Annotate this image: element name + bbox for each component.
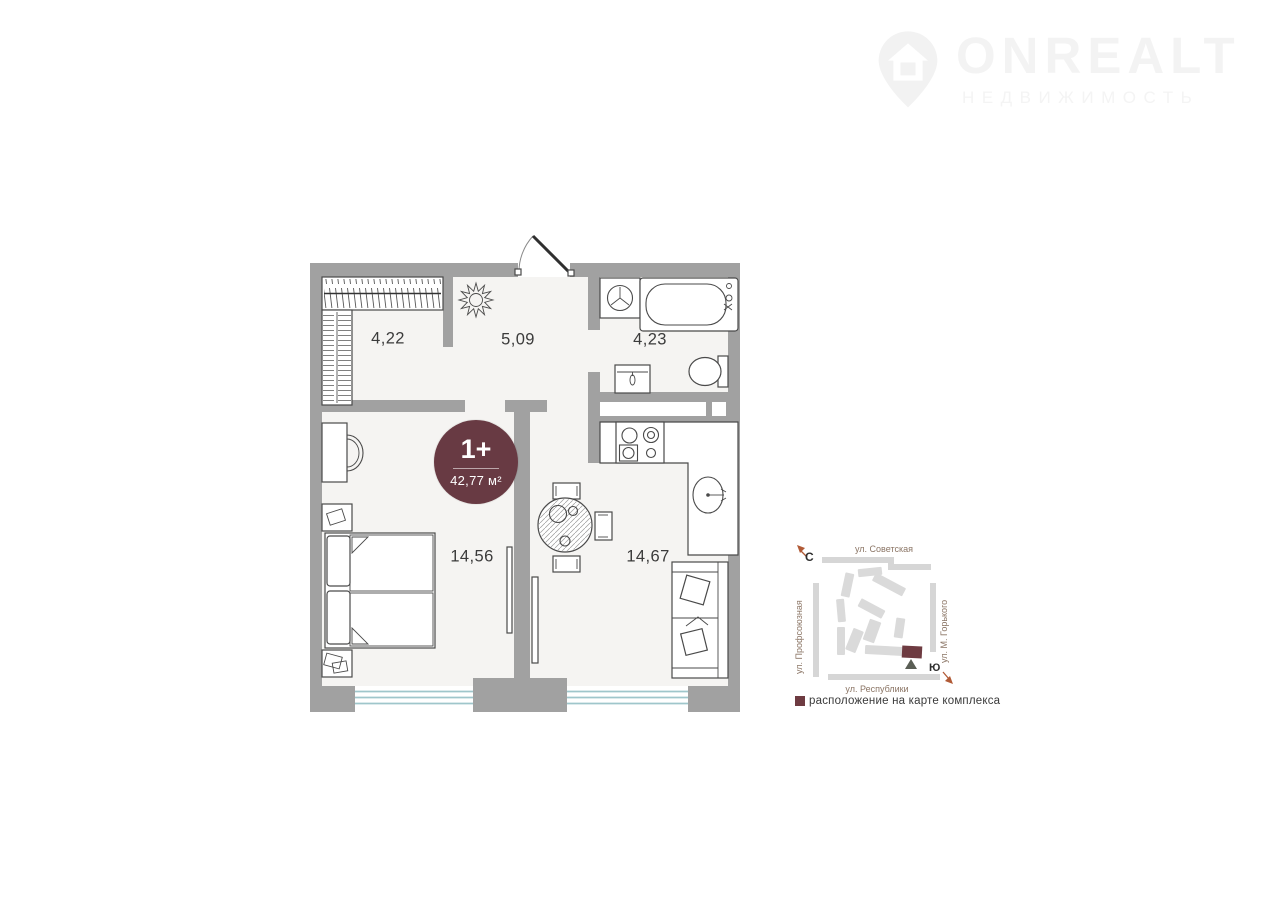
wardrobe-shelf-icon	[322, 310, 352, 405]
logo-subtitle-text: НЕДВИЖИМОСТЬ	[956, 88, 1241, 108]
map-building	[863, 619, 882, 644]
map-building	[857, 598, 885, 619]
street-label-right: ул. М. Горького	[939, 589, 949, 673]
logo-brand-text: ONREALT	[956, 30, 1241, 81]
floorplan-drawing	[310, 228, 740, 712]
bed-icon	[325, 533, 435, 648]
unit-badge: 1+ 42,77 м²	[434, 420, 518, 504]
site-map: С ул. Советская ул. Профсоюзная ул. М. Г…	[793, 543, 988, 718]
wall-bottom-pier-left	[310, 686, 355, 712]
legend-text: расположение на карте комплекса	[809, 695, 1000, 707]
window-icon	[355, 686, 473, 712]
screenshot-root: 4,22 5,09 4,23 14,56 14,67 1+ 42,77 м² O…	[0, 0, 1280, 902]
wall-top-left	[310, 263, 518, 277]
map-building	[837, 627, 845, 655]
shaft-opening	[712, 402, 726, 416]
map-building	[865, 645, 904, 656]
entry-door-icon	[515, 236, 574, 276]
south-arrow-icon	[941, 670, 955, 685]
wall-bottom-pier-center	[473, 678, 567, 712]
location-pointer-icon	[905, 659, 917, 669]
map-building	[841, 572, 855, 597]
street-bar	[890, 564, 931, 570]
room-label-wardrobe: 4,22	[371, 330, 405, 349]
sofa-icon	[672, 562, 728, 678]
room-label-living: 14,67	[626, 548, 669, 567]
wall-top-right	[570, 263, 740, 277]
stove-icon	[616, 422, 664, 463]
street-bar	[813, 583, 819, 677]
legend-square-icon	[795, 696, 805, 706]
location-marker-icon	[902, 645, 923, 658]
toilet-icon	[689, 356, 728, 387]
wall-bath-left-top	[588, 277, 600, 330]
map-building	[872, 573, 906, 597]
map-building	[845, 628, 864, 653]
nightstand-icon	[322, 650, 352, 677]
window-icon	[567, 686, 688, 712]
wall-bottom-pier-right	[688, 686, 740, 712]
room-label-hall: 5,09	[501, 331, 535, 350]
onrealt-pin-icon	[876, 30, 940, 110]
map-legend: расположение на карте комплекса	[795, 695, 1000, 707]
sink-icon	[615, 365, 650, 393]
compass-south: Ю	[929, 662, 940, 674]
sliding-door-panel	[532, 577, 538, 663]
map-building	[894, 617, 906, 638]
room-label-bathroom: 4,23	[633, 331, 667, 350]
badge-divider	[453, 468, 499, 469]
sliding-door-panel	[507, 547, 512, 633]
street-bar	[822, 557, 894, 563]
room-label-bedroom: 14,56	[450, 548, 493, 567]
street-label-left: ул. Профсоюзная	[794, 595, 804, 679]
washing-machine-icon	[600, 278, 640, 318]
floorplan	[310, 228, 740, 712]
street-bar	[828, 674, 940, 680]
wall-central-cap	[505, 400, 547, 412]
wall-wardrobe-right	[443, 277, 453, 347]
bathtub-icon	[640, 278, 738, 331]
unit-rooms: 1+	[461, 436, 492, 463]
unit-area: 42,77 м²	[450, 473, 502, 488]
wardrobe-rail-icon	[322, 277, 443, 310]
wall-left	[310, 263, 322, 712]
compass-north: С	[805, 550, 814, 564]
street-label-bottom: ул. Республики	[827, 684, 927, 694]
shaft-opening	[600, 402, 706, 416]
street-label-top: ул. Советская	[834, 544, 934, 554]
nightstand-icon	[322, 504, 352, 531]
street-bar	[930, 583, 936, 652]
map-building	[836, 599, 846, 623]
watermark-logo: ONREALT НЕДВИЖИМОСТЬ	[876, 30, 1241, 110]
